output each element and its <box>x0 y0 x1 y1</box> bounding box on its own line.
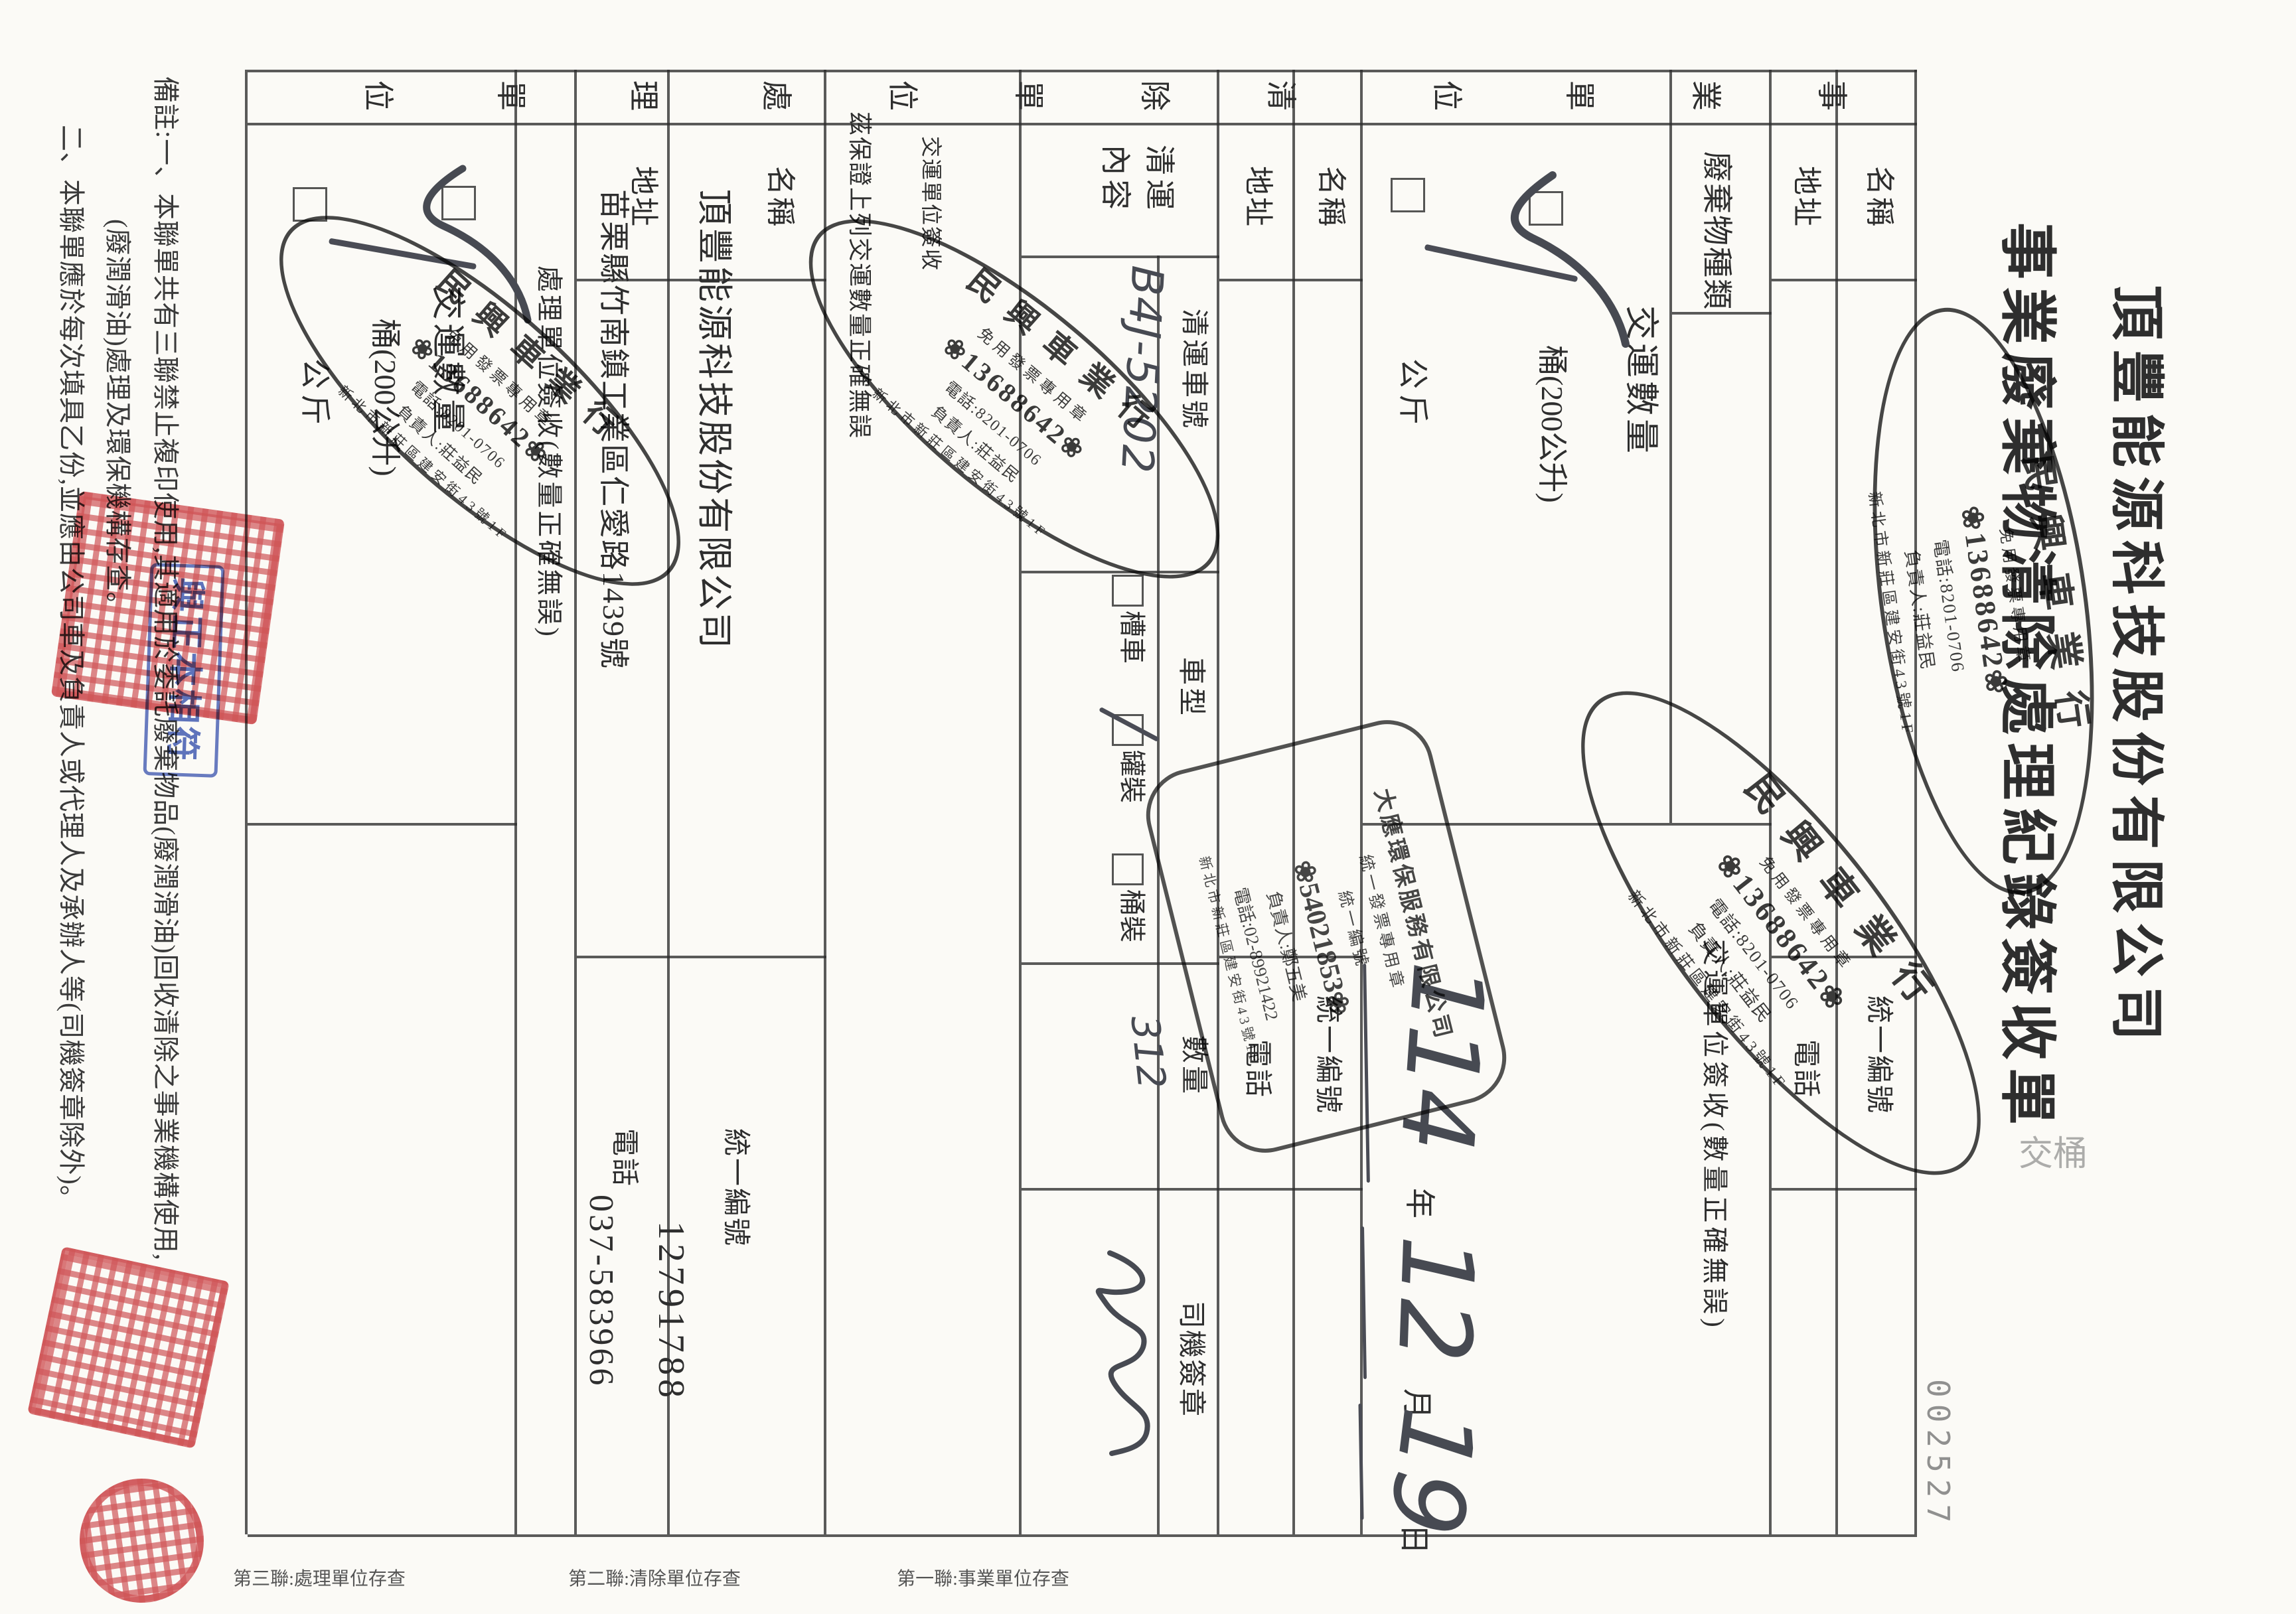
vehicle-type-label: 車型 <box>1177 657 1205 718</box>
date-underline <box>1358 1404 1363 1520</box>
section-tab-processor: 單 <box>495 80 526 111</box>
scanned-receipt: 頂豐能源科技股份有限公司 事業廢棄物清除處理紀錄簽收單 002527 交桶 事 … <box>0 0 2296 1614</box>
trans-name-label: 名稱 <box>1316 166 1345 228</box>
date-day-hand: 19 <box>1374 1403 1488 1541</box>
driver-sign-label: 司機簽章 <box>1177 1301 1205 1418</box>
gen-barrel-checkmark <box>1480 166 1632 352</box>
date-day-label: 日 <box>1399 1524 1429 1554</box>
section-tab-generator: 業 <box>1690 80 1721 111</box>
red-seal-large-right <box>27 1246 230 1449</box>
gen-waste-type-label: 廢棄物種類 <box>1701 151 1732 311</box>
section-tab-processor: 理 <box>628 80 658 111</box>
grid-line <box>1672 312 1772 315</box>
type-barrel-checkbox <box>1112 853 1144 885</box>
proc-ubn-value: 12791788 <box>652 1221 690 1402</box>
bleedthrough-marks: 交桶 <box>2019 1137 2088 1172</box>
grid-line <box>248 1534 1917 1537</box>
date-month-hand: 12 <box>1383 1234 1488 1364</box>
serial-number: 002527 <box>1923 1379 1953 1529</box>
grid-line <box>577 956 826 958</box>
date-year-label: 年 <box>1404 1188 1434 1218</box>
section-tab-processor: 位 <box>362 80 393 111</box>
copy-match-stamp: 與正本相符 <box>143 563 224 778</box>
proc-tel-value: 037-583966 <box>583 1195 618 1388</box>
proc-addr-label: 地址 <box>629 166 658 228</box>
minxing-stamp-1: 民興車業行 免用發票專用章 ❀13688642❀ 電話:8201-0706 負責… <box>1839 294 2127 909</box>
proc-tel-label: 電話 <box>610 1128 638 1188</box>
vehicle-no-label: 清運車號 <box>1180 309 1207 431</box>
grid-line <box>1835 70 1838 1534</box>
trans-qty-handwritten: 312 <box>1125 1013 1171 1090</box>
grid-line <box>248 823 517 826</box>
gen-kg-checkbox <box>1391 178 1425 212</box>
gen-unit-barrel: 桶(200公升) <box>1537 345 1567 503</box>
section-tab-processor: 處 <box>761 80 791 111</box>
company-title: 頂豐能源科技股份有限公司 <box>2109 285 2163 1050</box>
grid-line <box>248 123 1917 125</box>
proc-ubn-label: 統一編號 <box>722 1128 749 1248</box>
trans-content-label: 清運 <box>1144 145 1174 214</box>
proc-name-value: 頂豐能源科技股份有限公司 <box>696 189 732 651</box>
section-tab-transporter: 除 <box>1139 80 1170 111</box>
type-tank-checkbox <box>1112 575 1144 607</box>
section-tab-generator: 位 <box>1431 80 1462 111</box>
proc-name-label: 名稱 <box>765 166 795 228</box>
grid-line <box>1219 1188 1363 1191</box>
copy-desc-1: 第一聯:事業單位存查 <box>797 1570 1169 1589</box>
grid-line <box>1022 1188 1219 1191</box>
section-tab-transporter: 位 <box>887 80 917 111</box>
grid-line <box>1772 279 1917 281</box>
gen-unit-kg: 公斤 <box>1397 358 1428 430</box>
section-tab-generator: 事 <box>1816 80 1847 111</box>
grid-line <box>1914 70 1917 1534</box>
grid-line <box>245 70 248 1534</box>
grid-line <box>1022 256 1219 258</box>
grid-line <box>574 70 577 1534</box>
grid-line <box>1772 1188 1917 1191</box>
red-seal-small <box>72 1471 212 1611</box>
type-barrel-label: 桶裝 <box>1118 889 1145 942</box>
driver-signature <box>1080 1241 1173 1460</box>
trans-addr-label: 地址 <box>1243 166 1272 228</box>
copy-desc-2: 第二聯:清除單位存查 <box>469 1570 840 1589</box>
gen-addr-label: 地址 <box>1792 166 1821 228</box>
grid-line <box>248 70 1917 72</box>
copy-match-text: 與正本相符 <box>163 577 204 764</box>
section-tab-generator: 單 <box>1564 80 1594 111</box>
trans-content-label: 內容 <box>1100 145 1130 214</box>
section-tab-transporter: 單 <box>1013 80 1043 111</box>
waste-disposal-form: 頂豐能源科技股份有限公司 事業廢棄物清除處理紀錄簽收單 002527 交桶 事 … <box>0 0 2296 1614</box>
section-tab-transporter: 清 <box>1265 80 1296 111</box>
grid-line <box>1219 279 1363 281</box>
type-tank-label: 槽車 <box>1118 611 1145 664</box>
type-can-label: 罐裝 <box>1118 750 1145 803</box>
gen-name-label: 名稱 <box>1865 166 1894 228</box>
